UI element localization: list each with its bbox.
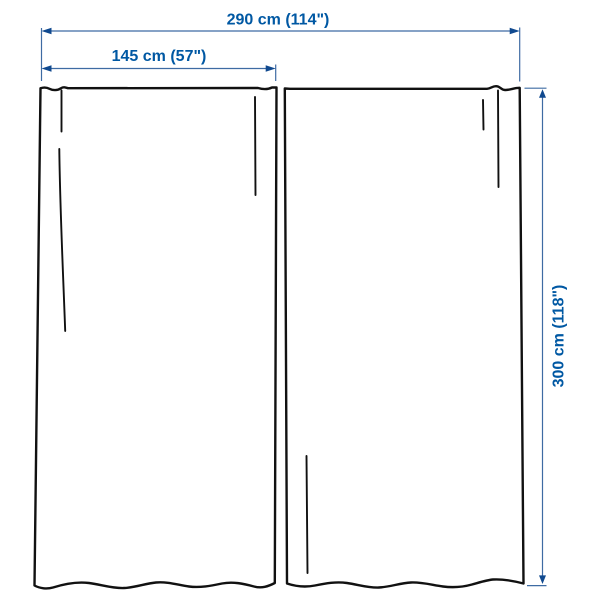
svg-text:300 cm (118"): 300 cm (118") [551, 285, 568, 388]
svg-text:145 cm (57"): 145 cm (57") [112, 48, 207, 65]
svg-text:290 cm (114"): 290 cm (114") [227, 12, 330, 29]
